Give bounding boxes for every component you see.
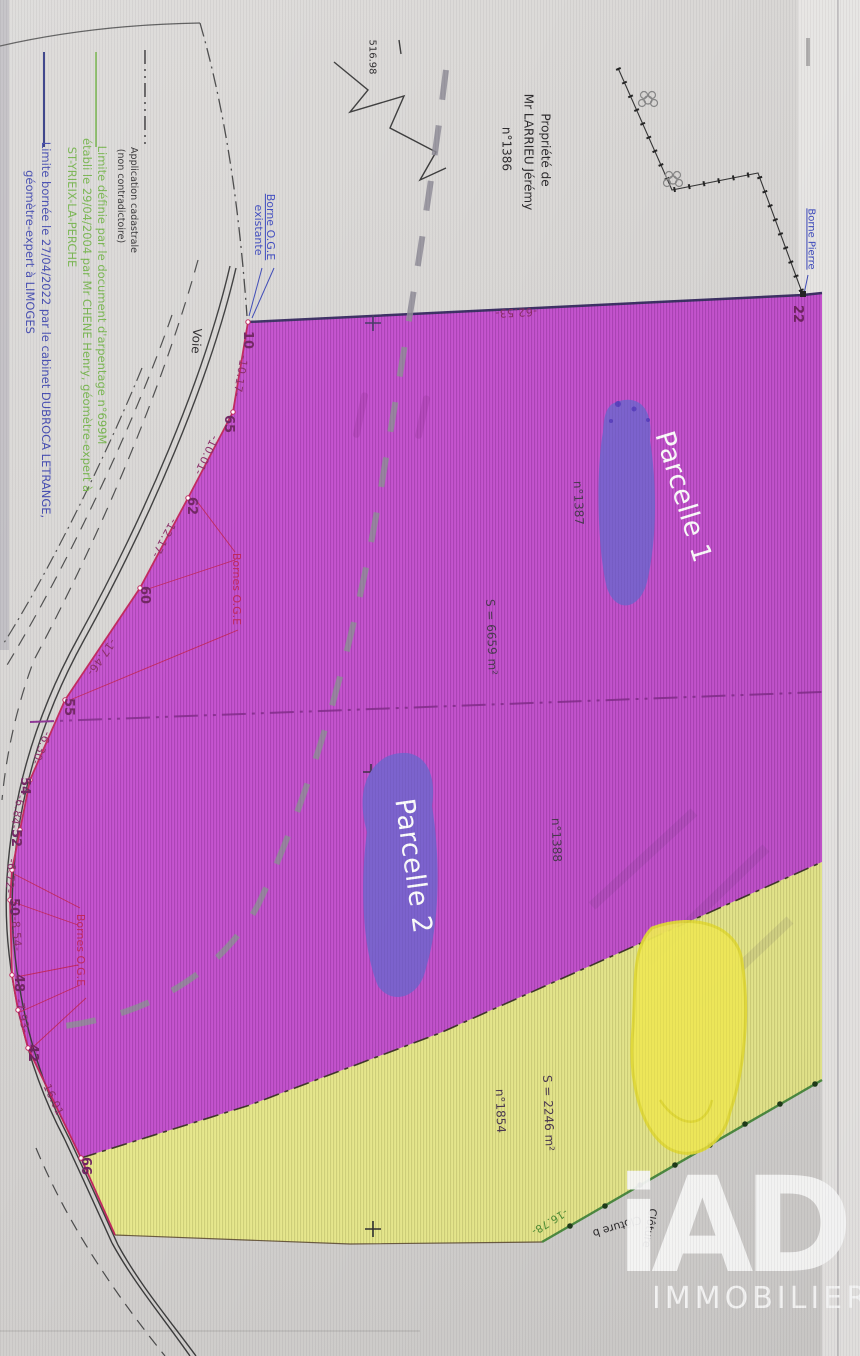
- vertex-10: 10: [240, 331, 254, 349]
- vertex-66: 66: [78, 1157, 92, 1175]
- vertex-22: 22: [790, 305, 804, 323]
- owner-line3: n°1386: [500, 127, 513, 171]
- parcel1-label: Parcelle 1: [649, 428, 717, 567]
- iad-logo: iAD IMMOBILIER: [616, 1166, 860, 1356]
- vertex-55: 55: [61, 698, 75, 716]
- owner-line1: Propriété de: [539, 113, 552, 186]
- iad-logo-tagline: IMMOBILIER: [652, 1281, 860, 1316]
- vertex-60: 60: [137, 586, 151, 604]
- label-borne-oge-existante-line1: Borne O.G.E: [264, 194, 276, 261]
- dist-62-53: -62.53-: [495, 305, 538, 319]
- parcel1-number: n°1387: [571, 481, 585, 526]
- owner-line2: Mr LARRIEU Jérémy: [522, 94, 535, 210]
- legend-cadastrale-line1: Application cadastrale: [128, 147, 138, 253]
- dist-10-17: -10.17-: [230, 354, 249, 398]
- legend-bornee-line2: géomètre-expert à LIMOGES: [24, 170, 36, 334]
- dist-6-30: -6.30-: [29, 730, 53, 767]
- parcel2-number: n°1388: [549, 818, 563, 863]
- parcel2-label: Parcelle 2: [389, 797, 437, 936]
- dist-6-84: -6.84-: [8, 794, 26, 830]
- legend-arpentage-line3: ST-YRIEIX-LA-PERCHE: [66, 147, 78, 268]
- dist-10-01: -10.01-: [192, 433, 221, 476]
- label-bornes-oge-1: Bornes O.G.E: [230, 553, 242, 625]
- vertex-65: 65: [221, 415, 235, 433]
- label-voie: Voie: [189, 328, 204, 354]
- vertex-54: 54: [17, 777, 31, 795]
- legend-cadastrale-line2: (non contradictoire): [115, 149, 125, 243]
- vertex-50: 50: [6, 898, 20, 916]
- vertex-52: 52: [8, 829, 22, 847]
- legend-arpentage-line2: établi le 29/04/2004 par Mr CHENE Henry,…: [81, 138, 93, 492]
- dist-16-78: -16.78-: [529, 1205, 569, 1236]
- dist-17-46: -17.46-: [84, 636, 118, 677]
- dist-6-72: -6.72-: [3, 858, 18, 894]
- parcel1-area: S = 6659 m²: [483, 599, 499, 676]
- survey-plan-photo: Application cadastrale(non contradictoir…: [0, 0, 860, 1356]
- label-bornes-oge-2: Bornes O.G.E: [74, 914, 86, 986]
- dist-16-01: -16.01-: [39, 1078, 68, 1121]
- legend-bornee-line1: Limite bornée le 27/04/2022 par le cabin…: [40, 142, 52, 518]
- dist-8-54: -8.54-: [9, 916, 23, 952]
- dist-12-17: -12.17-: [149, 517, 179, 560]
- parcel3-area: S = 2246 m²: [540, 1075, 556, 1152]
- parcel3-number: n°1854: [493, 1089, 507, 1134]
- vertex-42: 42: [25, 1044, 39, 1062]
- vertex-62: 62: [184, 497, 198, 515]
- dist-7-93: -7.93-: [13, 998, 31, 1034]
- label-borne-pierre: Borne Pierre: [805, 208, 816, 269]
- label-516-98: 516.98: [366, 40, 377, 75]
- label-borne-oge-existante-line2: existante: [252, 205, 264, 256]
- legend-arpentage-line1: Limite définie par le document d'arpenta…: [96, 146, 108, 445]
- iad-logo-brand: iAD: [616, 1166, 860, 1287]
- vertex-48: 48: [11, 974, 25, 992]
